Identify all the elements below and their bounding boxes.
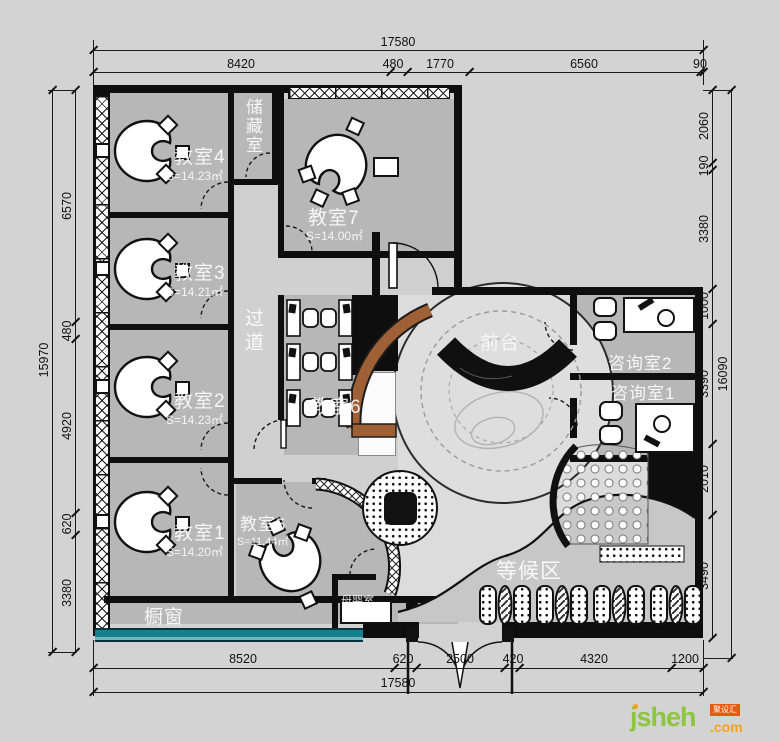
consult1-furniture	[600, 402, 694, 452]
label-storage: 储藏室	[240, 98, 265, 155]
label-nursing-room: 母婴室	[341, 592, 374, 608]
dim-label: 2010	[697, 465, 711, 493]
dim-label: 1200	[671, 652, 699, 666]
dim-label: 2500	[446, 652, 474, 666]
watermark-logo: jsheh 聚设汇 .com	[630, 702, 770, 738]
dim-bottom-total: 17580	[381, 676, 416, 690]
side-table	[374, 158, 398, 176]
dim-right-total: 16090	[716, 357, 730, 392]
dim-label: 420	[503, 652, 524, 666]
dim-label: 6560	[570, 57, 598, 71]
label-classroom2: 教室2	[174, 386, 226, 413]
dim-label: 2060	[697, 112, 711, 140]
dim-line	[52, 90, 53, 652]
round-rug	[363, 471, 437, 545]
consult2-furniture	[594, 297, 694, 340]
dotted-mat	[600, 546, 684, 562]
label-consult1: 咨询室1	[611, 379, 675, 404]
label-classroom4: 教室4	[174, 142, 226, 169]
dim-label: 90	[693, 57, 707, 71]
label-classroom1: 教室1	[174, 518, 226, 545]
dim-label: 480	[60, 321, 74, 342]
dim-line	[75, 90, 76, 652]
logo-tld: .com	[710, 719, 743, 735]
dim-label: 3390	[697, 370, 711, 398]
logo-dot	[633, 704, 638, 709]
area-classroom5: S=11.44㎡	[237, 533, 288, 549]
dim-line	[731, 90, 732, 658]
dim-top-total: 17580	[381, 35, 416, 49]
label-waiting-area: 等候区	[496, 555, 562, 585]
dim-line	[93, 692, 703, 693]
dim-line	[93, 50, 703, 51]
label-corridor: 过道	[239, 308, 266, 356]
label-classroom7: 教室7	[308, 203, 360, 230]
dim-label: 8520	[229, 652, 257, 666]
dim-label: 1000	[697, 292, 711, 320]
dim-label: 3380	[697, 215, 711, 243]
label-classroom3: 教室3	[174, 258, 226, 285]
dim-label: 4920	[60, 412, 74, 440]
dim-label: 3380	[60, 579, 74, 607]
area-classroom1: S=14.20㎡	[166, 543, 223, 560]
dim-label: 620	[60, 514, 74, 535]
logo-brand: jsheh	[630, 702, 696, 732]
label-reception: 前台	[480, 328, 520, 355]
dim-label: 480	[383, 57, 404, 71]
area-classroom7: S=14.00㎡	[306, 227, 363, 244]
dim-label: 6570	[60, 192, 74, 220]
label-display-window: 橱窗	[144, 602, 184, 629]
label-consult2: 咨询室2	[608, 349, 672, 374]
dim-line	[93, 72, 703, 73]
floor-plan-canvas: 教室4 S=14.23㎡ 教室3 S=14.21㎡ 教室2 S=14.23㎡ 教…	[0, 0, 780, 742]
dim-line	[712, 90, 713, 638]
dim-label: 1770	[426, 57, 454, 71]
dim-label: 8420	[227, 57, 255, 71]
dim-label: 3490	[697, 562, 711, 590]
wood-counter	[352, 310, 430, 437]
label-classroom6: 教室6	[310, 392, 362, 419]
label-classroom5: 教室5	[240, 510, 286, 535]
area-classroom3: S=14.21㎡	[166, 283, 223, 300]
dim-left-total: 15970	[37, 343, 51, 378]
area-classroom2: S=14.23㎡	[166, 411, 223, 428]
dim-label: 190	[697, 156, 711, 177]
dim-label: 4320	[580, 652, 608, 666]
dim-line	[93, 668, 703, 669]
dim-label: 620	[393, 652, 414, 666]
area-classroom4: S=14.23㎡	[166, 167, 223, 184]
logo-badge: 聚设汇	[710, 704, 740, 716]
